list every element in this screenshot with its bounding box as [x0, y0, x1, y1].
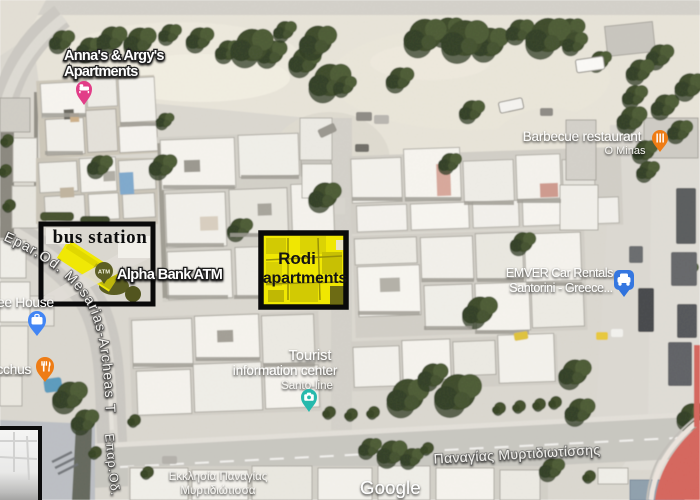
svg-text:Tourist: Tourist: [289, 348, 332, 364]
svg-text:Anna's & Argy's: Anna's & Argy's: [64, 48, 164, 64]
svg-text:Apartments: Apartments: [64, 64, 138, 80]
svg-text:apartments: apartments: [263, 270, 348, 287]
svg-text:Barbecue restaurant: Barbecue restaurant: [523, 129, 642, 144]
svg-text:O Minas: O Minas: [605, 145, 646, 157]
svg-text:Google: Google: [360, 477, 421, 498]
svg-text:Μυρτιδιώτισσα: Μυρτιδιώτισσα: [180, 485, 255, 497]
svg-text:bus station: bus station: [53, 227, 148, 248]
svg-text:ATM: ATM: [98, 270, 110, 276]
svg-text:Santorini - Greece...: Santorini - Greece...: [509, 281, 612, 295]
svg-text:information center: information center: [233, 363, 338, 378]
svg-text:Alpha Bank ATM: Alpha Bank ATM: [117, 267, 223, 283]
svg-text:Εκκλησία Παναγίας: Εκκλησία Παναγίας: [169, 471, 268, 483]
svg-text:Rodi: Rodi: [278, 249, 316, 268]
svg-text:acchus: acchus: [0, 361, 31, 377]
svg-text:EMVER Car Rentals,: EMVER Car Rentals,: [506, 266, 616, 280]
svg-text:ee House: ee House: [0, 294, 54, 310]
